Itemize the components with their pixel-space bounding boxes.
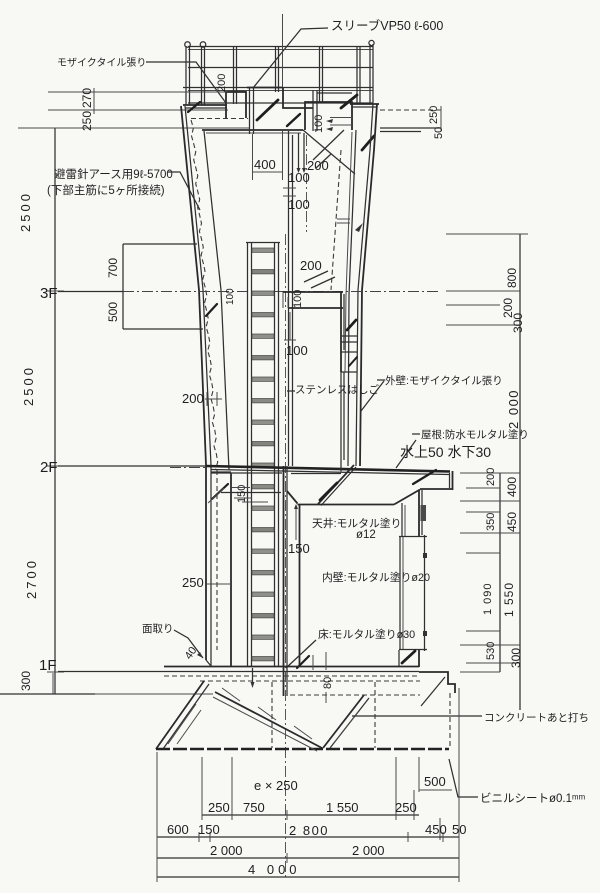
svg-text:150: 150: [288, 541, 310, 556]
svg-text:450: 450: [425, 822, 447, 837]
svg-text:1 090: 1 090: [482, 582, 494, 615]
svg-text:400: 400: [505, 477, 519, 497]
svg-text:500: 500: [424, 774, 446, 789]
svg-text:天井:モルタル塗り: 天井:モルタル塗り: [312, 516, 401, 530]
svg-text:250: 250: [395, 800, 417, 815]
svg-text:避雷針アース用9ℓ-5700: 避雷針アース用9ℓ-5700: [54, 167, 173, 181]
svg-text:300: 300: [509, 648, 523, 668]
svg-text:270: 270: [80, 88, 94, 108]
svg-text:2500: 2500: [21, 365, 36, 406]
svg-text:250: 250: [182, 575, 204, 590]
svg-text:100: 100: [288, 197, 310, 212]
svg-text:e × 250: e × 250: [254, 778, 298, 793]
svg-text:100: 100: [292, 290, 304, 308]
svg-text:800: 800: [505, 268, 519, 288]
svg-text:600: 600: [167, 822, 189, 837]
svg-text:450: 450: [505, 512, 519, 532]
svg-text:200: 200: [300, 258, 322, 273]
svg-text:水上50 水下30: 水上50 水下30: [400, 444, 491, 460]
svg-text:2700: 2700: [24, 558, 39, 599]
svg-text:スリーブVP50 ℓ-600: スリーブVP50 ℓ-600: [331, 18, 443, 33]
svg-text:750: 750: [243, 800, 265, 815]
svg-text:80: 80: [322, 677, 334, 689]
svg-text:250: 250: [428, 106, 440, 124]
svg-text:1F: 1F: [39, 657, 57, 674]
svg-text:3F: 3F: [40, 285, 58, 302]
svg-text:モザイクタイル張り: モザイクタイル張り: [57, 57, 146, 69]
svg-text:200: 200: [485, 468, 497, 486]
svg-text:100: 100: [313, 115, 325, 133]
svg-text:コンクリートあと打ち: コンクリートあと打ち: [484, 711, 589, 724]
svg-text:50: 50: [433, 127, 445, 139]
svg-text:530: 530: [485, 642, 497, 660]
svg-text:2 000: 2 000: [352, 843, 385, 858]
svg-text:100: 100: [288, 170, 310, 185]
svg-text:4 000: 4 000: [248, 862, 301, 877]
svg-text:200: 200: [182, 391, 204, 406]
svg-text:ビニルシートø0.1ᵐᵐ: ビニルシートø0.1ᵐᵐ: [480, 792, 585, 805]
svg-text:1 550: 1 550: [502, 582, 516, 617]
svg-text:外壁:モザイクタイル張り: 外壁:モザイクタイル張り: [385, 374, 503, 387]
svg-text:300: 300: [19, 671, 33, 691]
svg-text:100: 100: [286, 343, 308, 358]
svg-text:150: 150: [198, 822, 220, 837]
svg-text:500: 500: [106, 302, 120, 322]
svg-text:(下部主筋に5ヶ所接続): (下部主筋に5ヶ所接続): [47, 183, 165, 197]
svg-text:ステンレスはしご: ステンレスはしご: [295, 383, 379, 396]
svg-text:250: 250: [80, 111, 94, 131]
svg-text:2F: 2F: [40, 459, 58, 476]
svg-text:250: 250: [208, 800, 230, 815]
svg-text:2 000: 2 000: [210, 843, 243, 858]
svg-text:内壁:モルタル塗りø20: 内壁:モルタル塗りø20: [322, 570, 430, 584]
svg-text:2 800: 2 800: [289, 823, 329, 838]
svg-text:ø12: ø12: [356, 529, 376, 541]
svg-text:200: 200: [216, 74, 228, 92]
svg-text:700: 700: [106, 258, 120, 278]
svg-text:100: 100: [225, 288, 236, 305]
svg-text:400: 400: [254, 157, 276, 172]
svg-text:2500: 2500: [18, 191, 33, 232]
svg-text:1 550: 1 550: [326, 800, 359, 815]
svg-text:面取り: 面取り: [142, 623, 174, 635]
svg-text:2 000: 2 000: [506, 389, 521, 429]
svg-text:350: 350: [485, 513, 497, 531]
svg-text:300: 300: [511, 313, 525, 333]
svg-text:50: 50: [452, 822, 466, 837]
